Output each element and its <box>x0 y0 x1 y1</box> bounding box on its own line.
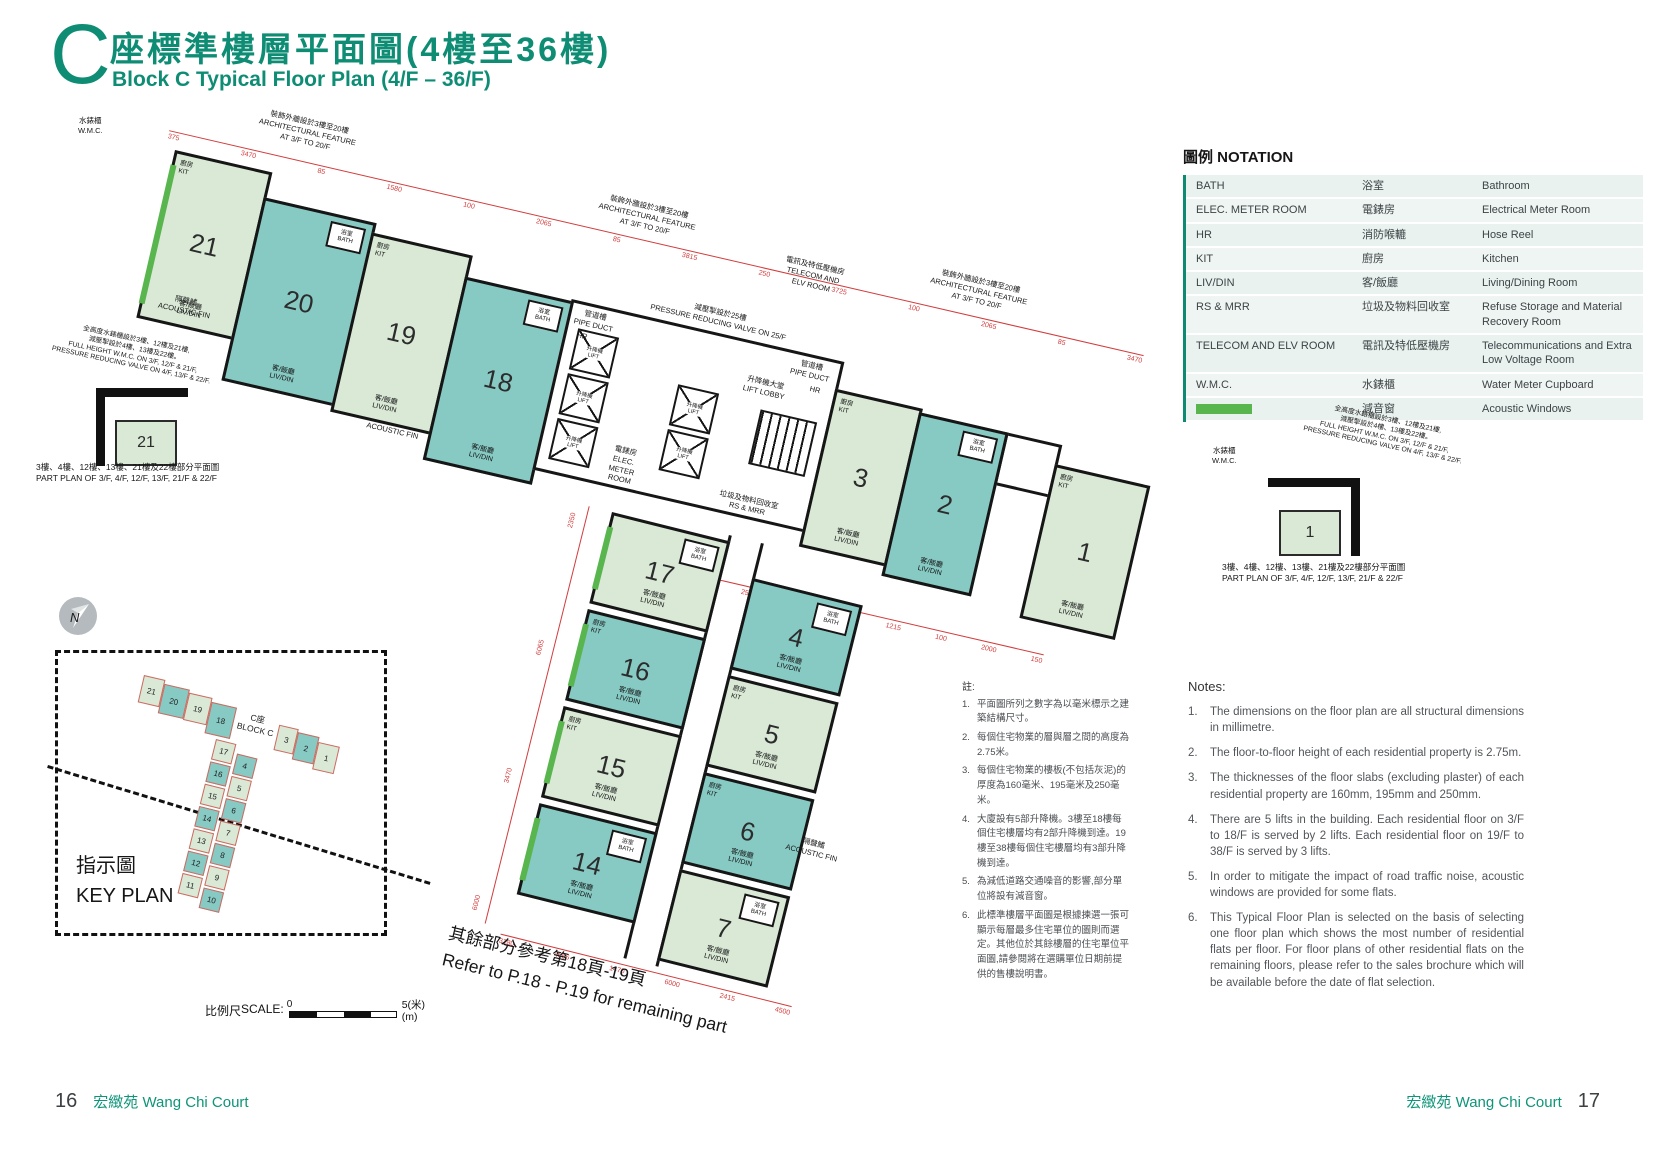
notation-en: Kitchen <box>1482 252 1643 266</box>
unit-number: 7 <box>713 912 735 946</box>
rs-mrr-label: 垃圾及物料回收室 RS & MRR <box>692 482 804 526</box>
lift-label: 升降機 LIFT <box>573 390 594 406</box>
north-letter: N <box>70 610 80 625</box>
lift-shaft: 升降機 LIFT <box>658 429 708 479</box>
key-unit-1: 1 <box>312 742 340 774</box>
unit-number: 5 <box>761 718 783 752</box>
page-title-en: Block C Typical Floor Plan (4/F – 36/F) <box>112 68 491 92</box>
notation-row: ELEC. METER ROOM電錶房Electrical Meter Room <box>1186 199 1643 223</box>
scale-ruler <box>289 1011 397 1018</box>
livdin-label: 客/飯廳 LIV/DIN <box>886 550 974 586</box>
bath-room: 浴室 BATH <box>606 829 647 863</box>
kit-label: 廚房 KIT <box>566 716 582 734</box>
lift-shaft: 升降機 LIFT <box>569 328 619 378</box>
dim-label: 2065 <box>980 321 997 331</box>
unit-number: 19 <box>384 315 419 352</box>
part-plan-unit-21: 21 <box>115 420 177 466</box>
dim-label: 100 <box>462 201 475 210</box>
unit-number: 18 <box>481 362 516 399</box>
dim-label: 3470 <box>240 150 257 160</box>
kit-label: 廚房 KIT <box>730 685 746 703</box>
part-plan-caption-left: 3樓、4樓、12樓、13樓、21樓及22樓部分平面圖 PART PLAN OF … <box>36 462 261 484</box>
notation-abbr: W.M.C. <box>1196 378 1362 392</box>
key-unit-13: 13 <box>189 828 214 853</box>
livdin-label: 客/飯廳 LIV/DIN <box>1025 592 1119 630</box>
note-item: 1.平面圖所列之數字為以毫米標示之建築結構尺寸。 <box>962 698 1130 727</box>
note-text: The thicknesses of the floor slabs (excl… <box>1210 770 1524 802</box>
bath-room: 浴室 BATH <box>678 538 719 572</box>
scale-label-en: SCALE: <box>241 1002 284 1016</box>
central-core: 管道槽 PIPE DUCT HR 減壓掣設於25樓 PRESSURE REDUC… <box>532 299 844 533</box>
unit-number: 20 <box>281 283 316 320</box>
wmc-label: 水錶櫃 W.M.C. <box>1212 446 1237 466</box>
notation-row: HR消防喉轆Hose Reel <box>1186 224 1643 248</box>
note-number: 1. <box>962 698 977 727</box>
note-text: This Typical Floor Plan is selected on t… <box>1210 910 1524 990</box>
dim-label: 6000 <box>472 895 483 912</box>
notation-row: BATH浴室Bathroom <box>1186 175 1643 199</box>
unit-number: 14 <box>569 845 605 882</box>
notation-zh: 垃圾及物料回收室 <box>1362 300 1482 329</box>
dim-label: 3470 <box>503 767 514 784</box>
notation-zh: 電錶房 <box>1362 203 1482 217</box>
notation-en: Acoustic Windows <box>1482 402 1643 416</box>
unit-number: 16 <box>618 651 654 688</box>
scale-start: 0 <box>287 999 293 1010</box>
note-text: There are 5 lifts in the building. Each … <box>1210 812 1524 860</box>
key-plan-title: 指示圖 KEY PLAN <box>76 851 173 911</box>
notation-en: Bathroom <box>1482 179 1643 193</box>
lift-shaft: 升降機 LIFT <box>548 418 598 468</box>
key-plan-title-zh: 指示圖 <box>76 851 173 881</box>
dim-label: 6065 <box>535 640 546 657</box>
notation-zh: 水錶櫃 <box>1362 378 1482 392</box>
key-unit-14: 14 <box>194 806 219 831</box>
notation-abbr: TELECOM AND ELV ROOM <box>1196 339 1362 368</box>
notation-zh: 廚房 <box>1362 252 1482 266</box>
kit-label: 廚房 KIT <box>177 160 193 178</box>
notation-row-acoustic: 減音窗Acoustic Windows <box>1186 398 1643 422</box>
key-plan-title-en: KEY PLAN <box>76 881 173 911</box>
notes-en-title: Notes: <box>1188 678 1524 696</box>
note-number: 4. <box>962 813 977 872</box>
notation-en: Hose Reel <box>1482 228 1643 242</box>
scale-unit: (m) <box>402 1011 425 1023</box>
note-item: 6.此標準樓層平面圖是根據揀選一張可顯示每層最多住宅單位的圖則而選定。其他位於其… <box>962 909 1130 983</box>
note-number: 3. <box>1188 770 1210 802</box>
notation-en: Electrical Meter Room <box>1482 203 1643 217</box>
project-name-en: Wang Chi Court <box>142 1094 248 1111</box>
bath-room: 浴室 BATH <box>811 602 852 636</box>
unit-7: 7 客/飯廳 LIV/DIN 浴室 BATH <box>657 869 790 988</box>
note-number: 4. <box>1188 812 1210 860</box>
north-arrow: N <box>58 596 98 641</box>
notation-en: Living/Dining Room <box>1482 276 1643 290</box>
note-text: 此標準樓層平面圖是根據揀選一張可顯示每層最多住宅單位的圖則而選定。其他位於其餘樓… <box>977 909 1130 983</box>
note-number: 1. <box>1188 704 1210 736</box>
dim-label: 2350 <box>567 512 578 529</box>
note-item: 2.The floor-to-floor height of each resi… <box>1188 745 1524 761</box>
note-item: 4.There are 5 lifts in the building. Eac… <box>1188 812 1524 860</box>
page-number-right: 17 <box>1578 1090 1600 1113</box>
note-text: 每個住宅物業的層與層之間的高度為2.75米。 <box>977 731 1130 760</box>
part-plan-left: 21 <box>96 388 188 466</box>
note-text: In order to mitigate the impact of road … <box>1210 869 1524 901</box>
lift-label: 升降機 LIFT <box>684 401 705 417</box>
part-plan-right: 1 <box>1268 478 1360 556</box>
unit-number: 6 <box>737 815 759 849</box>
livdin-label: 客/飯廳 LIV/DIN <box>804 520 890 556</box>
lift-label: 升降機 LIFT <box>584 345 605 361</box>
kit-label: 廚房 KIT <box>706 782 722 800</box>
notes-zh-title: 註: <box>962 680 1130 696</box>
note-item: 6.This Typical Floor Plan is selected on… <box>1188 910 1524 990</box>
note-text: 為減低道路交通噪音的影響,部分單位將設有減音窗。 <box>977 875 1130 904</box>
unit-number: 17 <box>642 554 678 591</box>
unit-5: 5 客/飯廳 LIV/DIN 廚房 KIT <box>705 675 838 794</box>
block-letter: C <box>50 12 111 96</box>
staircase <box>748 409 817 477</box>
note-item: 5.為減低道路交通噪音的影響,部分單位將設有減音窗。 <box>962 875 1130 904</box>
key-unit-12: 12 <box>183 851 208 876</box>
page-title-zh: 座標準樓層平面圖(4樓至36樓) <box>110 22 611 71</box>
livdin-label: 客/飯廳 LIV/DIN <box>227 354 338 396</box>
scale-bar-graphic: 0 <box>289 1011 397 1018</box>
unit-6: 6 客/飯廳 LIV/DIN 廚房 KIT <box>681 772 814 891</box>
elec-meter-room-label: 電錶房 ELEC. METER ROOM <box>593 440 652 490</box>
key-unit-15: 15 <box>200 784 225 809</box>
key-unit-10: 10 <box>199 887 224 912</box>
dim-label: 3815 <box>681 252 698 262</box>
key-unit-17: 17 <box>211 739 236 764</box>
note-item: 4.大廈設有5部升降機。3樓至18樓每個住宅樓層均有2部升降機到達。19樓至38… <box>962 813 1130 872</box>
lift-shaft: 升降機 LIFT <box>669 384 719 434</box>
compass-icon: N <box>58 596 98 636</box>
project-name-en: Wang Chi Court <box>1456 1094 1562 1111</box>
notation-row: W.M.C.水錶櫃Water Meter Cupboard <box>1186 374 1643 398</box>
unit-number: 2 <box>934 488 955 521</box>
block-c-label: C座 BLOCK C <box>236 710 277 739</box>
dim-label: 100 <box>907 304 920 313</box>
lift-shaft: 升降機 LIFT <box>558 373 608 423</box>
bath-room: 浴室 BATH <box>738 893 779 927</box>
kit-label: 廚房 KIT <box>1057 474 1073 492</box>
part-plan-caption-right: 3樓、4樓、12樓、13樓、21樓及22樓部分平面圖 PART PLAN OF … <box>1222 562 1447 584</box>
key-plan-bottom-arm: 174 165 156 147 138 129 1110 <box>177 739 260 906</box>
notes-english: Notes: 1.The dimensions on the floor pla… <box>1188 678 1524 1000</box>
pipe-duct-label: 管道槽 PIPE DUCT <box>787 356 834 385</box>
hose-reel-label: HR <box>809 384 822 396</box>
scale-end-value: 5(米) <box>402 999 425 1011</box>
note-text: 大廈設有5部升降機。3樓至18樓每個住宅樓層均有2部升降機到達。19樓至38樓每… <box>977 813 1130 872</box>
kit-label: 廚房 KIT <box>590 619 606 637</box>
notation-zh: 消防喉轆 <box>1362 228 1482 242</box>
dim-label: 1580 <box>386 184 403 194</box>
notation-zh: 客/飯廳 <box>1362 276 1482 290</box>
key-unit-18: 18 <box>204 702 237 739</box>
notation-row: KIT廚房Kitchen <box>1186 248 1643 272</box>
floor-plan-bottom-wing: 2350606534706000 17 客/飯廳 LIV/DIN 浴室 BATH… <box>506 512 874 1004</box>
part-plan-unit-1: 1 <box>1279 510 1341 556</box>
notation-abbr: KIT <box>1196 252 1362 266</box>
note-number: 5. <box>962 875 977 904</box>
note-number: 6. <box>962 909 977 983</box>
notation-row: TELECOM AND ELV ROOM電訊及特低壓機房Telecommunic… <box>1186 335 1643 374</box>
notation-abbr: ELEC. METER ROOM <box>1196 203 1362 217</box>
dim-label: 85 <box>612 236 621 245</box>
note-text: 每個住宅物業的樓板(不包括灰泥)的厚度為160毫米、195毫米及250毫米。 <box>977 764 1130 808</box>
dim-label: 2000 <box>980 644 997 654</box>
notation-row: LIV/DIN客/飯廳Living/Dining Room <box>1186 272 1643 296</box>
unit-number: 4 <box>785 620 807 654</box>
unit-number: 1 <box>1306 524 1315 542</box>
key-plan: 21 20 19 18 C座 BLOCK C 3 2 1 174 165 156… <box>55 650 387 936</box>
kit-label: 廚房 KIT <box>374 242 390 260</box>
dim-label: 85 <box>1057 339 1066 348</box>
note-text: The floor-to-floor height of each reside… <box>1210 745 1524 761</box>
notation-table: BATH浴室Bathroom ELEC. METER ROOM電錶房Electr… <box>1183 175 1643 422</box>
dim-label: 85 <box>317 168 326 177</box>
notation-zh: 電訊及特低壓機房 <box>1362 339 1482 368</box>
scale-end: 5(米) (m) <box>402 999 425 1023</box>
dim-label: 2065 <box>535 218 552 228</box>
note-item: 3.每個住宅物業的樓板(不包括灰泥)的厚度為160毫米、195毫米及250毫米。 <box>962 764 1130 808</box>
bath-room: 浴室 BATH <box>523 299 564 332</box>
note-number: 2. <box>1188 745 1210 761</box>
dim-label: 1215 <box>885 622 902 632</box>
notation-en: Water Meter Cupboard <box>1482 378 1643 392</box>
notation-panel: 圖例 NOTATION BATH浴室Bathroom ELEC. METER R… <box>1183 146 1643 422</box>
notation-abbr: HR <box>1196 228 1362 242</box>
unit-number: 1 <box>1074 535 1095 568</box>
scale-label-zh: 比例尺 <box>205 1002 241 1019</box>
dim-label: 150 <box>1030 656 1043 665</box>
scale-bar: 比例尺 SCALE: 0 5(米) (m) <box>205 1002 425 1026</box>
note-item: 2.每個住宅物業的層與層之間的高度為2.75米。 <box>962 731 1130 760</box>
notation-zh: 浴室 <box>1362 179 1482 193</box>
key-unit-16: 16 <box>205 761 230 786</box>
footer-right: 宏緻苑 Wang Chi Court 17 <box>1406 1090 1600 1113</box>
unit-number: 3 <box>850 461 871 494</box>
header-band: C 座標準樓層平面圖(4樓至36樓) Block C Typical Floor… <box>0 0 1654 118</box>
notation-en: Refuse Storage and Material Recovery Roo… <box>1482 300 1643 329</box>
notation-abbr: BATH <box>1196 179 1362 193</box>
bath-room: 浴室 BATH <box>957 430 998 463</box>
lift-label: 升降機 LIFT <box>563 435 584 451</box>
lift-label: 升降機 LIFT <box>673 446 694 462</box>
key-unit-11: 11 <box>178 873 203 898</box>
page-number-left: 16 <box>55 1090 77 1113</box>
project-name-zh: 宏緻苑 <box>1406 1094 1451 1111</box>
note-number: 5. <box>1188 869 1210 901</box>
note-number: 6. <box>1188 910 1210 990</box>
project-name: 宏緻苑 Wang Chi Court <box>93 1091 248 1112</box>
pressure-reducing-valve-note: 減壓掣設於25樓 PRESSURE REDUCING VALVE ON 25/F <box>615 284 824 350</box>
notation-row: RS & MRR垃圾及物料回收室Refuse Storage and Mater… <box>1186 296 1643 335</box>
livdin-label: 客/飯廳 LIV/DIN <box>428 434 535 475</box>
note-item: 1.The dimensions on the floor plan are a… <box>1188 704 1524 736</box>
note-number: 2. <box>962 731 977 760</box>
note-item: 5.In order to mitigate the impact of roa… <box>1188 869 1524 901</box>
note-item: 3.The thicknesses of the floor slabs (ex… <box>1188 770 1524 802</box>
bath-room: 浴室 BATH <box>325 221 366 254</box>
dim-label: 375 <box>167 133 180 142</box>
dim-label: 3470 <box>1126 355 1143 365</box>
note-text: The dimensions on the floor plan are all… <box>1210 704 1524 736</box>
footer-left: 16 宏緻苑 Wang Chi Court <box>55 1090 249 1113</box>
wmc-label: 水錶櫃 W.M.C. <box>78 116 103 136</box>
livdin-label: 客/飯廳 LIV/DIN <box>335 385 434 424</box>
unit-number: 21 <box>187 227 222 264</box>
kit-label: 廚房 KIT <box>838 398 854 416</box>
notes-chinese: 註: 1.平面圖所列之數字為以毫米標示之建築結構尺寸。 2.每個住宅物業的層與層… <box>962 680 1130 986</box>
unit-number: 21 <box>137 434 155 452</box>
project-name: 宏緻苑 Wang Chi Court <box>1406 1091 1561 1112</box>
notation-abbr: LIV/DIN <box>1196 276 1362 290</box>
notation-title: 圖例 NOTATION <box>1183 146 1643 167</box>
notation-abbr: RS & MRR <box>1196 300 1362 329</box>
project-name-zh: 宏緻苑 <box>93 1094 138 1111</box>
notation-en: Telecommunications and Extra Low Voltage… <box>1482 339 1643 368</box>
note-text: 平面圖所列之數字為以毫米標示之建築結構尺寸。 <box>977 698 1130 727</box>
unit-4: 4 客/飯廳 LIV/DIN 浴室 BATH <box>729 578 862 697</box>
dim-label: 100 <box>934 634 947 643</box>
brochure-page: { "header": { "block_letter": "C", "titl… <box>0 0 1654 1170</box>
unit-number: 15 <box>594 748 630 785</box>
architectural-feature-note: 裝飾外牆設於3樓至20樓 ARCHITECTURAL FEATURE AT 3/… <box>922 264 1036 317</box>
note-number: 3. <box>962 764 977 808</box>
